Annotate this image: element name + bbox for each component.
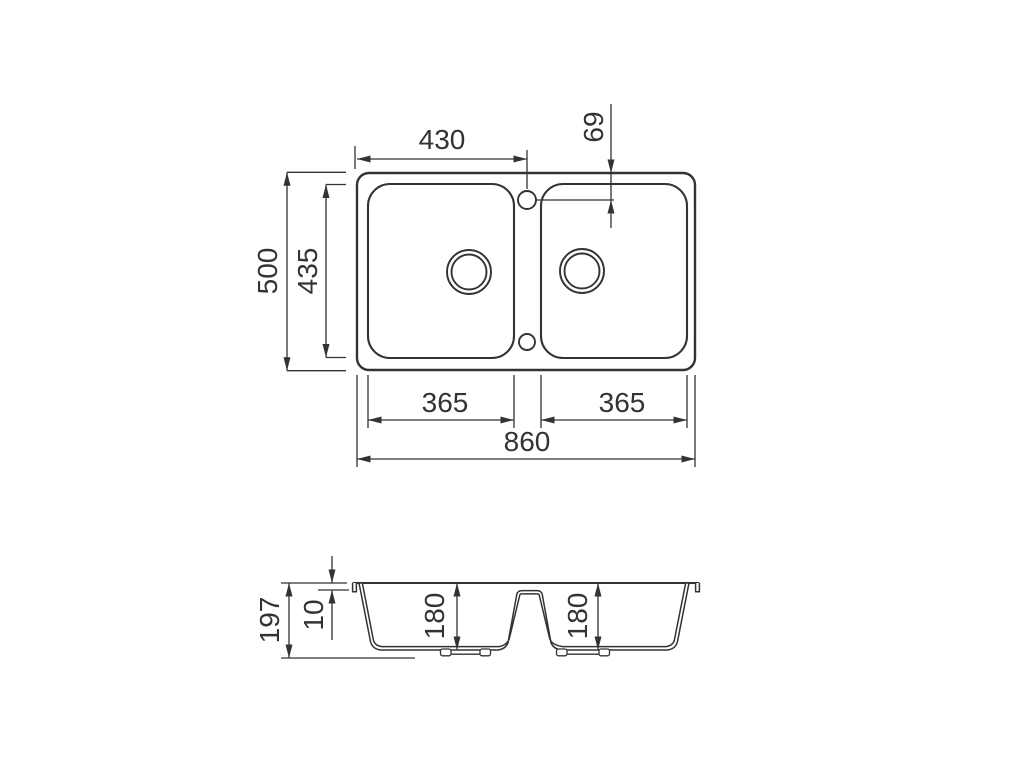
dim-365-right: 365 [541,375,687,428]
dim-label-180-right: 180 [562,593,593,640]
dim-label-860: 860 [504,426,551,457]
left-drain-foot-2 [480,649,491,656]
dim-label-500: 500 [252,248,283,295]
dim-10: 10 [298,556,349,640]
dim-430: 430 [355,124,527,189]
dim-label-365-right: 365 [599,387,646,418]
left-drain-outer [447,250,491,294]
left-drain-foot-1 [441,649,452,656]
section-left-lip [353,583,357,592]
dim-label-180-left: 180 [419,593,450,640]
sink-dimension-drawing: 430 69 500 435 365 [0,0,1024,768]
tap-hole-top [518,191,536,209]
dim-69: 69 [536,104,614,228]
section-bowl-profile [359,583,689,650]
sink-outer-rim [357,173,695,370]
section-view: 197 10 180 180 [254,556,700,658]
dim-435: 435 [292,185,346,358]
dim-label-435: 435 [292,248,323,295]
dim-label-197: 197 [254,597,285,644]
dim-label-430: 430 [419,124,466,155]
dim-365-left: 365 [368,375,514,428]
dim-label-365-left: 365 [422,387,469,418]
dim-180-right: 180 [562,583,598,650]
right-drain-inner [565,254,600,289]
left-bowl-outline [368,184,514,358]
right-bowl-outline [541,184,687,358]
technical-drawing-canvas: 430 69 500 435 365 [0,0,1024,768]
dim-label-69: 69 [578,111,609,142]
right-drain-foot-2 [599,649,610,656]
dim-180-left: 180 [419,583,457,650]
section-right-lip [696,583,700,592]
plan-view: 430 69 500 435 365 [252,104,695,467]
dim-label-10: 10 [298,599,329,630]
right-drain-outer [560,249,604,293]
tap-hole-bottom [519,334,535,350]
right-drain-foot-1 [557,649,568,656]
left-drain-inner [452,255,487,290]
